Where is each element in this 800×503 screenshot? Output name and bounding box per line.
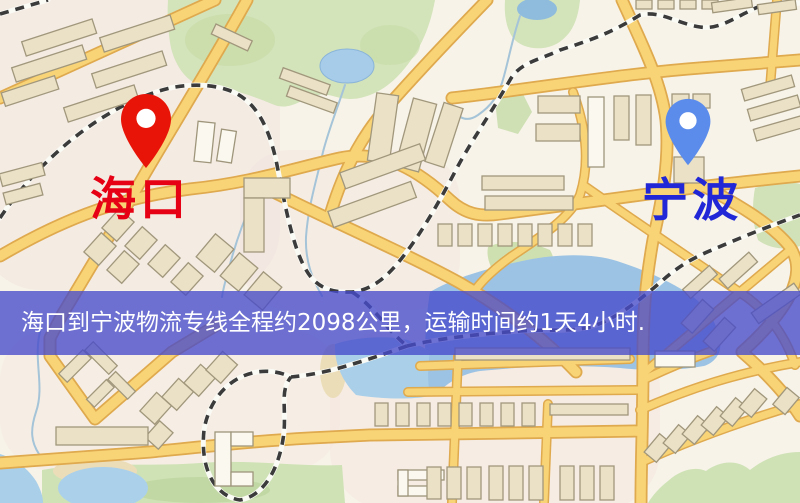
blue-pin-shape <box>666 99 711 165</box>
origin-label: 海口 <box>90 176 190 222</box>
origin-map-pin[interactable] <box>117 92 175 170</box>
destination-label: 宁波 <box>642 177 742 223</box>
blue-map-pin-icon <box>662 97 714 167</box>
red-map-pin-icon <box>117 92 175 170</box>
destination-map-pin[interactable] <box>662 97 714 167</box>
route-info-banner: 海口到宁波物流专线全程约2098公里，运输时间约1天4小时. <box>0 291 800 355</box>
map-screenshot: { "map": { "markers": { "origin": { "lab… <box>0 0 800 503</box>
red-pin-shape <box>121 94 171 168</box>
map-tiles <box>0 0 800 503</box>
map-canvas[interactable] <box>0 0 800 503</box>
route-info-text: 海口到宁波物流专线全程约2098公里，运输时间约1天4小时. <box>21 310 645 336</box>
